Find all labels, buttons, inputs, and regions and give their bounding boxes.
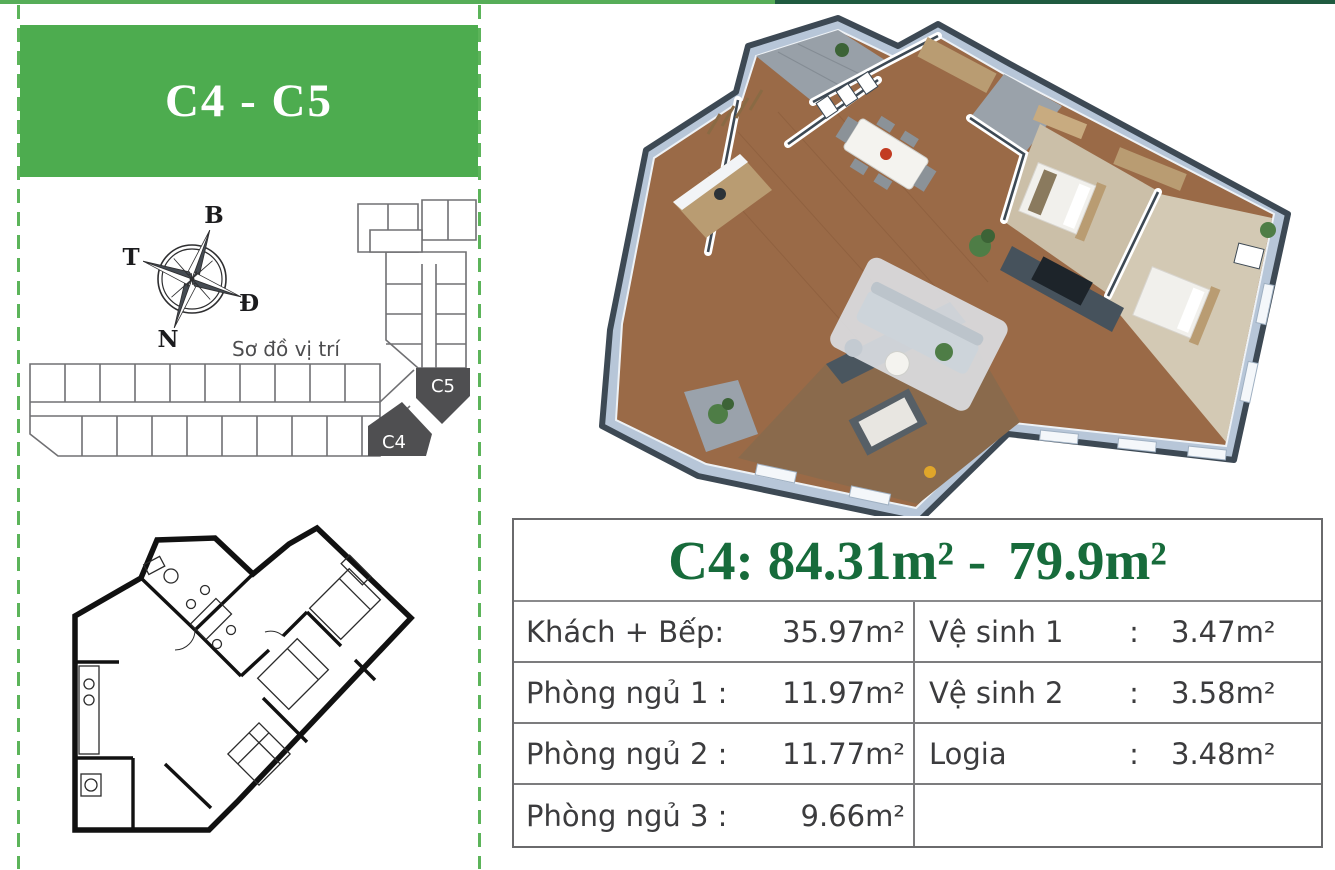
room-value: 9.66m² [801, 799, 913, 833]
plan-walls [75, 528, 411, 830]
unit-c5-label: C5 [431, 376, 455, 397]
location-map: C5 C4 [18, 196, 480, 468]
room-value: 3.47m² [1147, 615, 1275, 649]
title-dash: - [968, 529, 986, 592]
room-label: Phòng ngủ 3 : [526, 799, 727, 833]
table-body: Khách + Bếp: 35.97m² Vệ sinh 1 : 3.47m² … [514, 602, 1321, 846]
plan-furniture [79, 555, 380, 796]
colon: : [1121, 676, 1147, 710]
table-row-cell: Phòng ngủ 1 : 11.97m² [514, 663, 915, 724]
room-label: Vệ sinh 2 [929, 676, 1121, 710]
table-row-cell: Vệ sinh 1 : 3.47m² [915, 602, 1321, 663]
room-label: Phòng ngủ 1 : [526, 676, 727, 710]
room-value: 3.58m² [1147, 676, 1275, 710]
room-label: Vệ sinh 1 [929, 615, 1121, 649]
room-label: Logia [929, 737, 1121, 771]
table-row-cell: Vệ sinh 2 : 3.58m² [915, 663, 1321, 724]
title-net-unit: m² [1104, 529, 1166, 592]
table-row-cell: Phòng ngủ 2 : 11.77m² [514, 724, 915, 785]
table-row-cell: Logia : 3.48m² [915, 724, 1321, 785]
table-title: C4: 84.31m² - 79.9m² [514, 520, 1321, 602]
colon: : [1121, 737, 1147, 771]
title-gross-area: 84.31 [768, 529, 892, 592]
brochure-page: C4 - C5 B [0, 0, 1335, 870]
room-value: 35.97m² [782, 615, 913, 649]
render-3d [588, 2, 1302, 516]
room-value: 3.48m² [1147, 737, 1275, 771]
room-value: 11.77m² [782, 737, 913, 771]
unit-c4-label: C4 [382, 432, 406, 453]
room-value: 11.97m² [782, 676, 913, 710]
unit-header-title: C4 - C5 [165, 74, 333, 128]
title-gross-unit: m² [892, 529, 954, 592]
unit-header-box: C4 - C5 [20, 25, 478, 177]
title-net-area: 79.9 [1008, 529, 1104, 592]
room-label: Khách + Bếp: [526, 615, 724, 649]
table-row-cell [915, 785, 1321, 846]
room-label: Phòng ngủ 2 : [526, 737, 727, 771]
floor-plan-2d [45, 512, 435, 862]
title-unit: C4: [668, 529, 754, 592]
colon: : [1121, 615, 1147, 649]
area-table: C4: 84.31m² - 79.9m² Khách + Bếp: 35.97m… [512, 518, 1323, 848]
table-row-cell: Khách + Bếp: 35.97m² [514, 602, 915, 663]
table-row-cell: Phòng ngủ 3 : 9.66m² [514, 785, 915, 846]
